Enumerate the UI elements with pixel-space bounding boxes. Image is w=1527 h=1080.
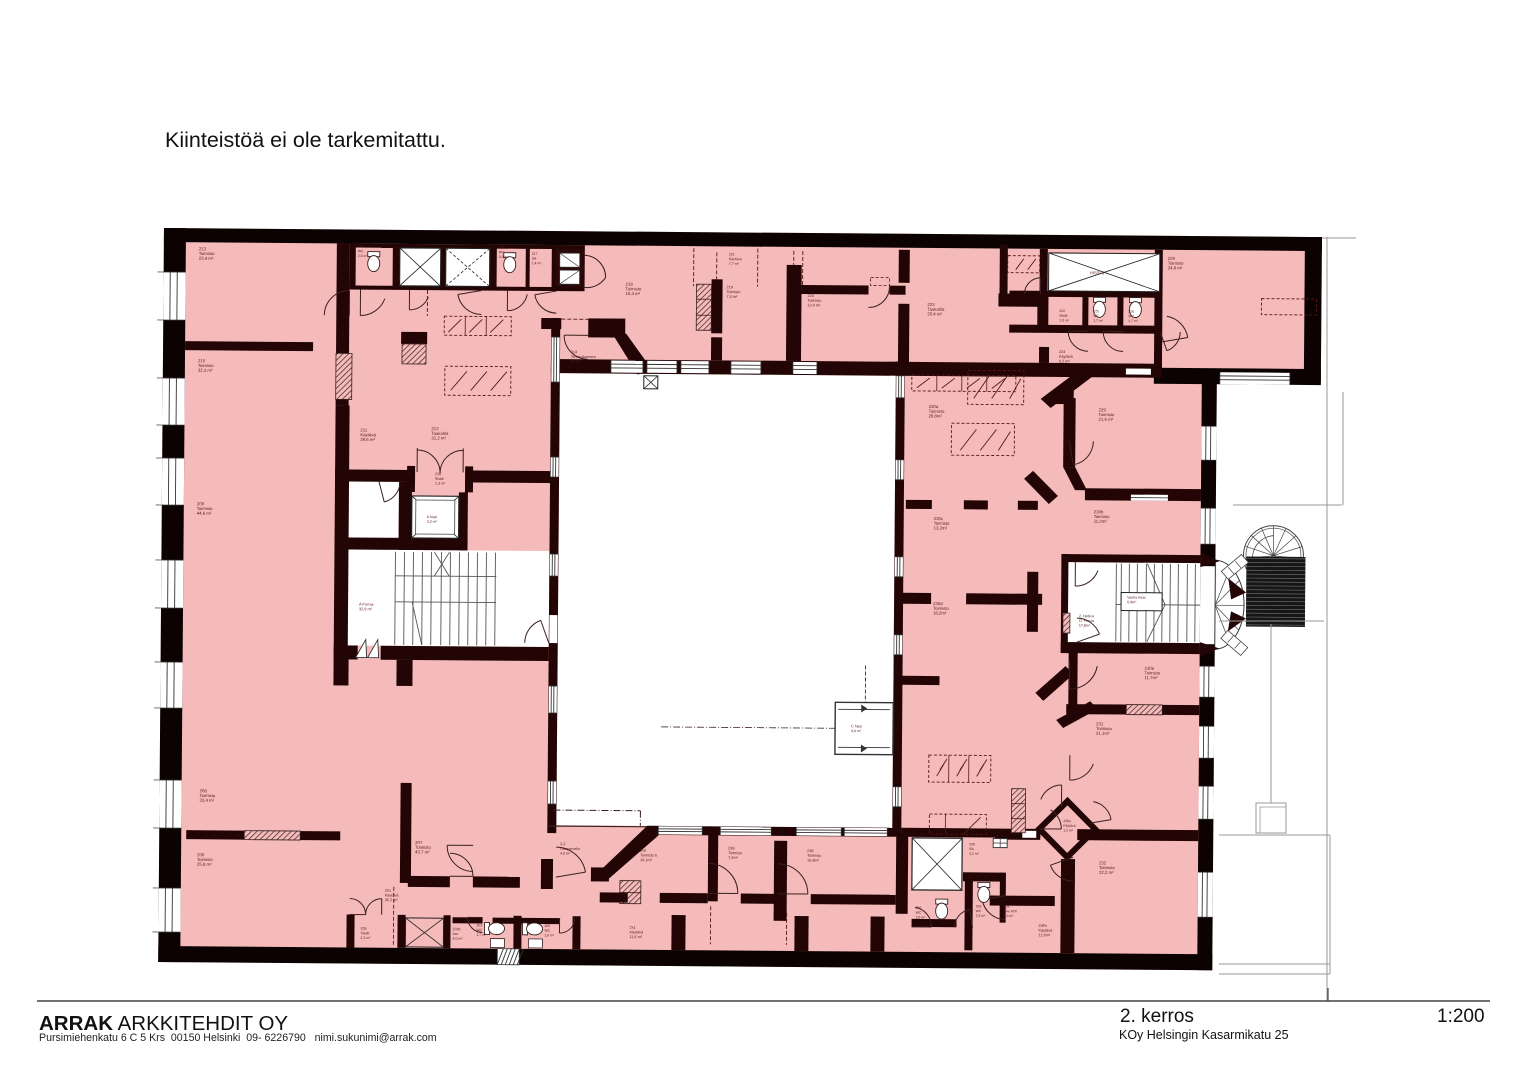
svg-text:A hissi3,2 m²: A hissi3,2 m² bbox=[427, 515, 438, 524]
svg-text:Pursimiehenkatu 6 C 5 Krs 001: Pursimiehenkatu 6 C 5 Krs 00150 Helsinki… bbox=[39, 1032, 437, 1044]
svg-text:C hissi4,0 m²: C hissi4,0 m² bbox=[851, 724, 862, 733]
svg-text:2. kerros: 2. kerros bbox=[1120, 1006, 1194, 1027]
svg-text:1:200: 1:200 bbox=[1437, 1006, 1485, 1027]
svg-text:Kiinteistöä ei ole tarkemitatt: Kiinteistöä ei ole tarkemitattu. bbox=[165, 128, 446, 152]
svg-text:KOy Helsingin Kasarmikatu 25: KOy Helsingin Kasarmikatu 25 bbox=[1119, 1028, 1289, 1042]
svg-text:A Porras32,9 m²: A Porras32,9 m² bbox=[359, 603, 374, 612]
svg-text:HISSI-3: HISSI-3 bbox=[1090, 270, 1105, 275]
